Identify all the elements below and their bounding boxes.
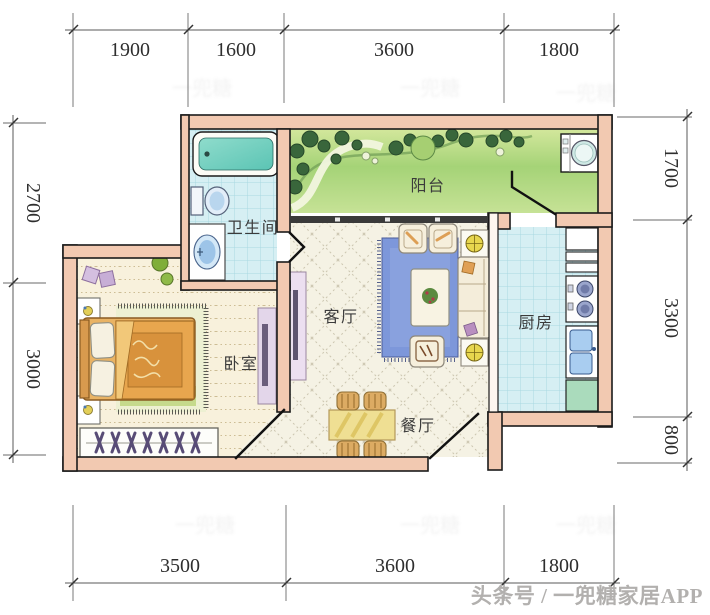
bathroom-sink-icon	[189, 224, 225, 280]
headboard	[80, 320, 89, 398]
side-table-lamp	[461, 339, 488, 366]
label-living: 客厅	[323, 308, 358, 326]
pillow	[90, 360, 115, 396]
dim-left-0: 2700	[22, 183, 44, 223]
toilet-icon	[191, 187, 229, 215]
side-table-lamp	[461, 230, 488, 257]
label-bedroom: 卧室	[223, 355, 258, 373]
dimension-left: 2700 3000	[3, 115, 46, 463]
kitchen-counter-green	[566, 380, 598, 411]
kitchen-fixtures	[566, 228, 598, 411]
floorplan-svg: 一兜糖 一兜糖 一兜糖 一兜糖 一兜糖 一兜糖 一兜糖	[0, 0, 710, 615]
cushion	[99, 271, 116, 288]
dim-left-1: 3000	[22, 349, 44, 389]
coffee-table	[411, 269, 449, 326]
dimension-right: 1700 3300 800	[617, 109, 692, 471]
faint-watermark: 一兜糖	[556, 82, 616, 105]
wall-bottom	[63, 457, 428, 471]
dim-right-2: 800	[660, 425, 682, 455]
tree-large	[411, 136, 435, 160]
balcony-sliding-door	[290, 216, 488, 223]
washing-machine	[561, 134, 598, 172]
wall-bathroom-left	[181, 115, 189, 290]
kitchen-shelf	[566, 263, 598, 272]
dim-bottom-1: 3600	[375, 555, 415, 577]
wall-right	[598, 115, 612, 427]
dining-chair	[364, 392, 386, 410]
label-dining: 餐厅	[400, 417, 435, 435]
faint-watermark: 一兜糖	[556, 514, 616, 537]
tv-icon	[262, 324, 268, 386]
wall-kitchen-bottom	[488, 412, 612, 426]
faint-watermark: 一兜糖	[400, 77, 460, 100]
dining-chair	[337, 392, 359, 410]
floorplan-canvas: 一兜糖 一兜糖 一兜糖 一兜糖 一兜糖 一兜糖 一兜糖	[0, 0, 710, 615]
dim-top-3: 1800	[539, 39, 579, 61]
wall-bathroom-right	[277, 129, 290, 232]
armchair	[399, 224, 427, 253]
tv-icon	[293, 290, 298, 360]
wall-bedroom-right	[277, 262, 290, 412]
bed	[80, 306, 206, 412]
wall-bedroom-top	[63, 245, 188, 258]
stove-icon	[566, 276, 598, 322]
dim-bottom-0: 3500	[160, 555, 200, 577]
armchair	[410, 336, 444, 367]
sofa-pillow	[462, 261, 475, 274]
dim-top-0: 1900	[110, 39, 150, 61]
wall-entry	[488, 412, 502, 470]
tv-cabinet	[258, 308, 276, 404]
faint-watermark: 一兜糖	[400, 514, 460, 537]
wall-kitchen-top	[556, 213, 612, 227]
label-bathroom: 卫生间	[227, 219, 280, 237]
wall-left	[63, 245, 77, 471]
dim-bottom-2: 1800	[539, 555, 579, 577]
dim-right-0: 1700	[660, 148, 682, 188]
dim-top-2: 3600	[374, 39, 414, 61]
bathtub-icon	[193, 132, 279, 176]
dimension-top: 1900 1600 3600 1800	[65, 13, 620, 107]
label-kitchen: 厨房	[518, 314, 553, 332]
sofa	[458, 257, 490, 338]
kitchen-shelf	[566, 252, 598, 261]
tv-cabinet	[290, 272, 306, 380]
wall-bathroom-bottom	[181, 281, 290, 290]
faint-watermark: 一兜糖	[172, 77, 232, 100]
wall-kitchen-left	[489, 213, 498, 412]
pillow	[90, 322, 115, 358]
kitchen-sink-icon	[566, 326, 598, 378]
wall-top	[181, 115, 612, 129]
armchair	[429, 224, 457, 253]
label-balcony: 阳台	[410, 177, 445, 195]
faint-watermark: 一兜糖	[175, 514, 235, 537]
dim-top-1: 1600	[216, 39, 256, 61]
kitchen-cabinet	[566, 228, 598, 250]
dim-right-1: 3300	[660, 298, 682, 338]
dining-table	[329, 410, 395, 440]
wardrobe	[80, 428, 218, 458]
credit-watermark: 头条号 / 一兜糖家居APP	[471, 584, 703, 608]
